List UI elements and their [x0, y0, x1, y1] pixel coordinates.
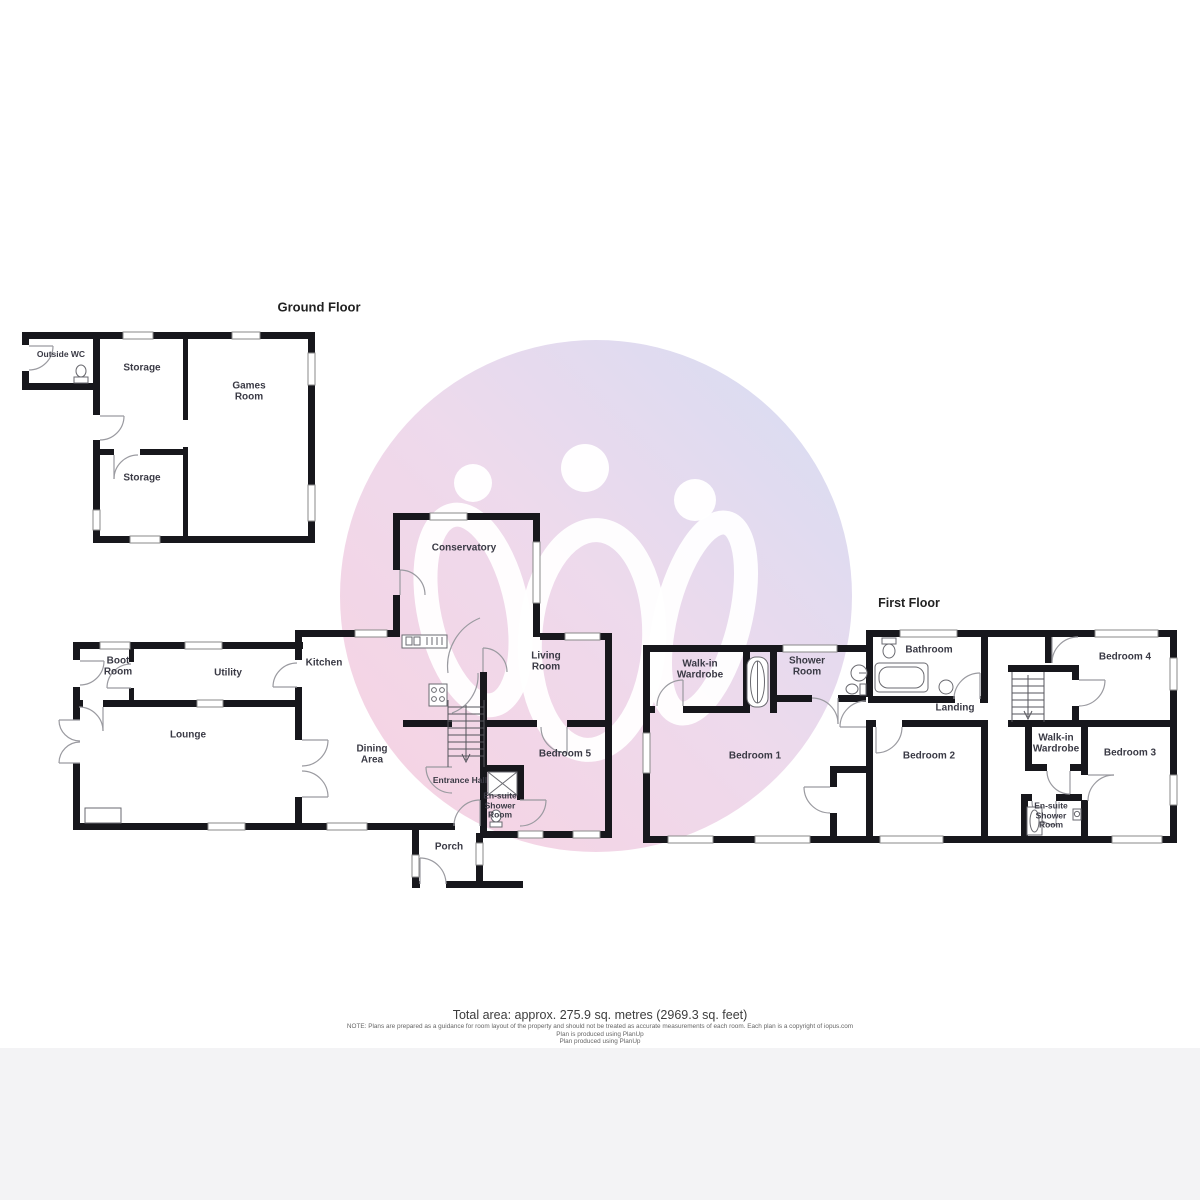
airing-cupboard-icon: [747, 657, 768, 707]
room-label-outside-wc: Outside WC: [34, 350, 88, 360]
fireplace-icon: [85, 808, 121, 823]
room-label-bathroom: Bathroom: [905, 644, 952, 655]
room-label-ensuite-ff: En-suite Shower Room: [1026, 802, 1076, 831]
pedestal-sink-icon: [939, 680, 953, 694]
bathtub-icon: [875, 663, 928, 692]
room-label-shower-room: Shower Room: [781, 656, 833, 679]
stove-icon: [429, 684, 447, 706]
ground-floor-title: Ground Floor: [277, 300, 360, 315]
plan-credit-line-2: Plan produced using PlanUp: [0, 1038, 1200, 1045]
total-area-text: Total area: approx. 275.9 sq. metres (29…: [0, 1008, 1200, 1022]
toilet-icon: [74, 365, 88, 383]
room-label-bedroom-5: Bedroom 5: [539, 748, 591, 759]
room-label-lounge: Lounge: [170, 729, 206, 740]
stairs-first-floor: [1012, 672, 1044, 722]
room-label-conservatory: Conservatory: [432, 542, 496, 553]
room-label-storage-top: Storage: [123, 362, 160, 373]
ground-floor-plan: [40, 495, 620, 905]
room-label-storage-bottom: Storage: [123, 472, 160, 483]
room-label-boot-room: Boot Room: [95, 656, 141, 679]
room-label-landing: Landing: [936, 702, 975, 713]
toilet-icon: [846, 684, 866, 695]
room-label-bedroom-3: Bedroom 3: [1104, 747, 1156, 758]
plan-credit-line: Plan is produced using PlanUp: [0, 1031, 1200, 1038]
room-label-living-room: Living Room: [523, 651, 569, 674]
stairs-ground-floor: [448, 700, 484, 767]
first-floor-plan: [635, 595, 1185, 850]
room-label-bedroom-4: Bedroom 4: [1099, 651, 1151, 662]
room-label-utility: Utility: [214, 667, 242, 678]
floorplan-page: Ground Floor First Floor Outside WC Stor…: [0, 0, 1200, 1200]
room-label-bedroom-1: Bedroom 1: [729, 750, 781, 761]
room-label-walkin-wardrobe-2: Walk-in Wardrobe: [1021, 733, 1091, 756]
room-label-kitchen: Kitchen: [306, 657, 343, 668]
room-label-bedroom-2: Bedroom 2: [903, 750, 955, 761]
page-footer-band: [0, 1048, 1200, 1200]
basin-icon: [851, 665, 867, 681]
disclaimer-note: NOTE: Plans are prepared as a guidance f…: [0, 1023, 1200, 1030]
room-label-games-room: Games Room: [221, 381, 277, 404]
room-label-walkin-wardrobe-1: Walk-in Wardrobe: [665, 659, 735, 682]
first-floor-title: First Floor: [878, 596, 940, 610]
room-label-dining-area: Dining Area: [347, 744, 397, 767]
room-label-porch: Porch: [435, 841, 463, 852]
kitchen-sink-icon: [402, 635, 447, 648]
room-label-ensuite-gf: En-suite Shower Room: [475, 792, 525, 821]
room-label-entrance-hall: Entrance Hall: [428, 776, 492, 786]
toilet-icon: [882, 638, 896, 658]
